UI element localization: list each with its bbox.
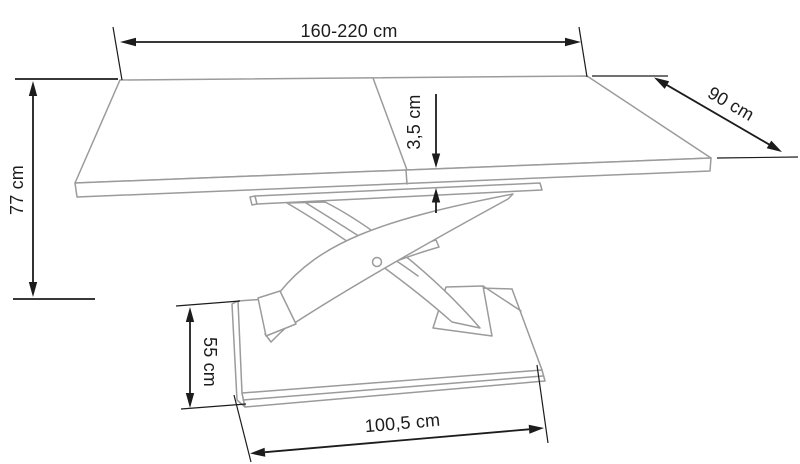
arrowhead xyxy=(29,282,37,297)
furniture-dimension-diagram: 160-220 cm 90 cm 77 cm xyxy=(0,0,800,464)
dimension-label-tabletop-thickness: 3,5 cm xyxy=(404,94,424,149)
table-diagram-canvas: 160-220 cm 90 cm 77 cm xyxy=(0,0,800,464)
dimension-label-table-height: 77 cm xyxy=(7,165,27,215)
arrowhead xyxy=(654,78,669,89)
tabletop-front-split-tick xyxy=(406,170,407,184)
arrowhead xyxy=(250,448,265,457)
dimension-label-tabletop-width: 160-220 cm xyxy=(300,21,397,41)
extension-line xyxy=(176,301,240,306)
pivot-bolt xyxy=(373,258,382,267)
extension-line xyxy=(579,27,587,77)
arrowhead xyxy=(186,307,194,322)
arrowhead xyxy=(186,393,194,408)
dimension-tabletop-width: 160-220 cm xyxy=(113,21,587,80)
arrowhead xyxy=(120,38,136,46)
arrowhead xyxy=(29,81,37,96)
extension-line xyxy=(113,27,122,80)
table-drawing xyxy=(75,76,711,407)
dimension-label-base-depth: 55 cm xyxy=(200,337,220,387)
arrowhead xyxy=(565,38,581,46)
dimension-label-base-width: 100,5 cm xyxy=(364,410,441,437)
tabletop xyxy=(75,76,711,197)
arrowhead xyxy=(529,425,544,434)
dimension-label-tabletop-depth: 90 cm xyxy=(704,83,757,125)
arrowhead xyxy=(767,141,782,152)
extension-line xyxy=(717,157,798,158)
